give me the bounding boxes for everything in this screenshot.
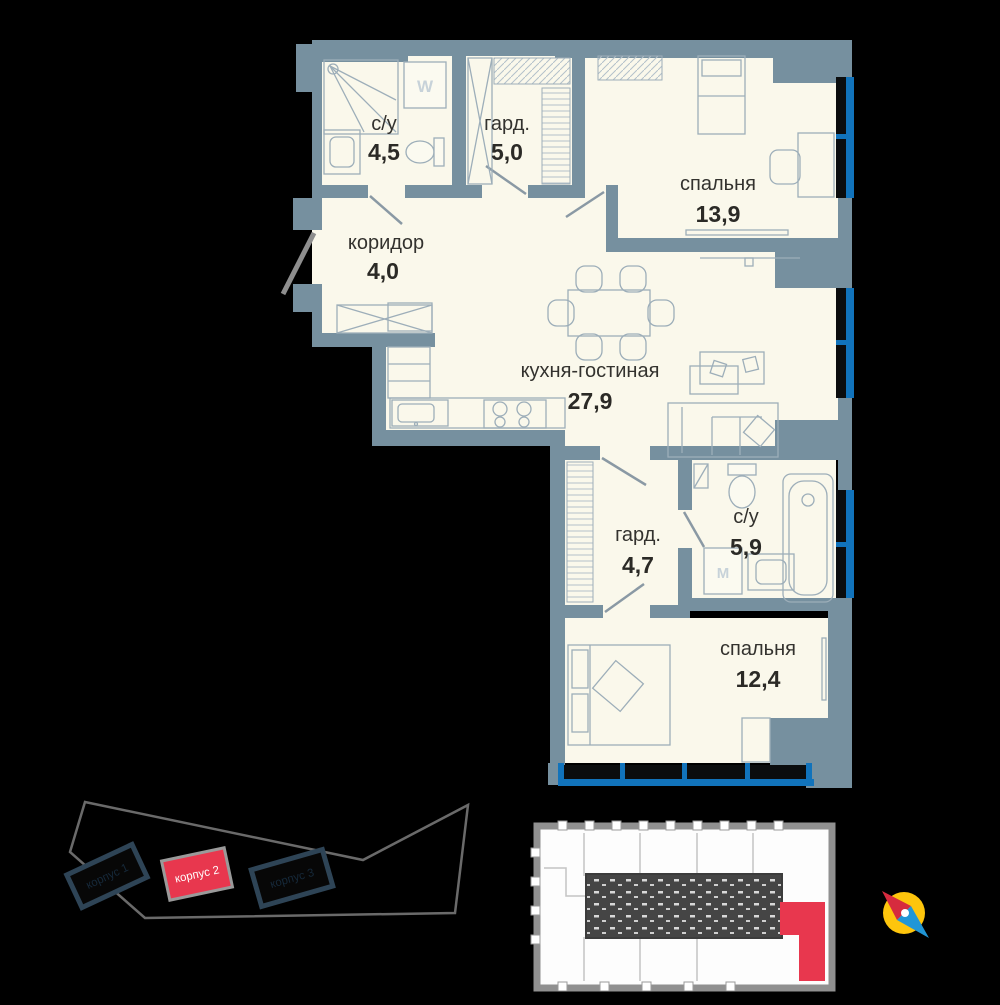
window-bedroom-1 <box>836 77 854 198</box>
room-area-bathroom-1: 4,5 <box>368 139 400 165</box>
toilet-icon <box>728 464 756 475</box>
washer-bottom-label: М <box>717 565 730 582</box>
building-korpus-3[interactable]: корпус 3 <box>251 850 333 907</box>
furniture-wardrobe-2 <box>567 462 593 602</box>
room-label-kitchen-living: кухня-гостиная <box>521 360 660 382</box>
page: с/у 4,5 гард. 5,0 спальня 13,9 коридор 4… <box>0 0 1000 1000</box>
floor-plan-canvas: с/у 4,5 гард. 5,0 спальня 13,9 коридор 4… <box>0 0 1000 1000</box>
toilet-icon <box>406 141 434 163</box>
washer-top-label: W <box>417 77 434 96</box>
room-label-bedroom-2: спальня <box>720 638 796 660</box>
room-label-bathroom-1: с/у <box>371 113 397 135</box>
site-plan: корпус 1 корпус 2 корпус 3 <box>67 802 468 918</box>
room-label-corridor: коридор <box>348 232 424 254</box>
room-area-bedroom-2: 12,4 <box>736 666 781 692</box>
room-area-wardrobe-1: 5,0 <box>491 139 523 165</box>
key-plan-core <box>586 874 782 938</box>
compass-pivot <box>901 909 909 917</box>
room-label-bathroom-2: с/у <box>733 506 759 528</box>
building-korpus-2[interactable]: корпус 2 <box>162 848 233 900</box>
room-area-kitchen-living: 27,9 <box>568 388 613 414</box>
room-area-corridor: 4,0 <box>367 258 399 284</box>
building-korpus-1[interactable]: корпус 1 <box>67 844 147 907</box>
window-living <box>836 288 854 398</box>
room-label-bedroom-1: спальня <box>680 173 756 195</box>
window-bathroom-2 <box>836 490 854 598</box>
window-bedroom-2 <box>558 763 814 786</box>
room-area-bedroom-1: 13,9 <box>696 201 741 227</box>
apartment-plan: с/у 4,5 гард. 5,0 спальня 13,9 коридор 4… <box>283 40 854 788</box>
compass <box>882 891 929 938</box>
key-plan <box>531 821 832 991</box>
room-label-wardrobe-2: гард. <box>615 524 661 546</box>
room-area-bathroom-2: 5,9 <box>730 534 762 560</box>
room-label-wardrobe-1: гард. <box>484 113 530 135</box>
room-area-wardrobe-2: 4,7 <box>622 552 654 578</box>
